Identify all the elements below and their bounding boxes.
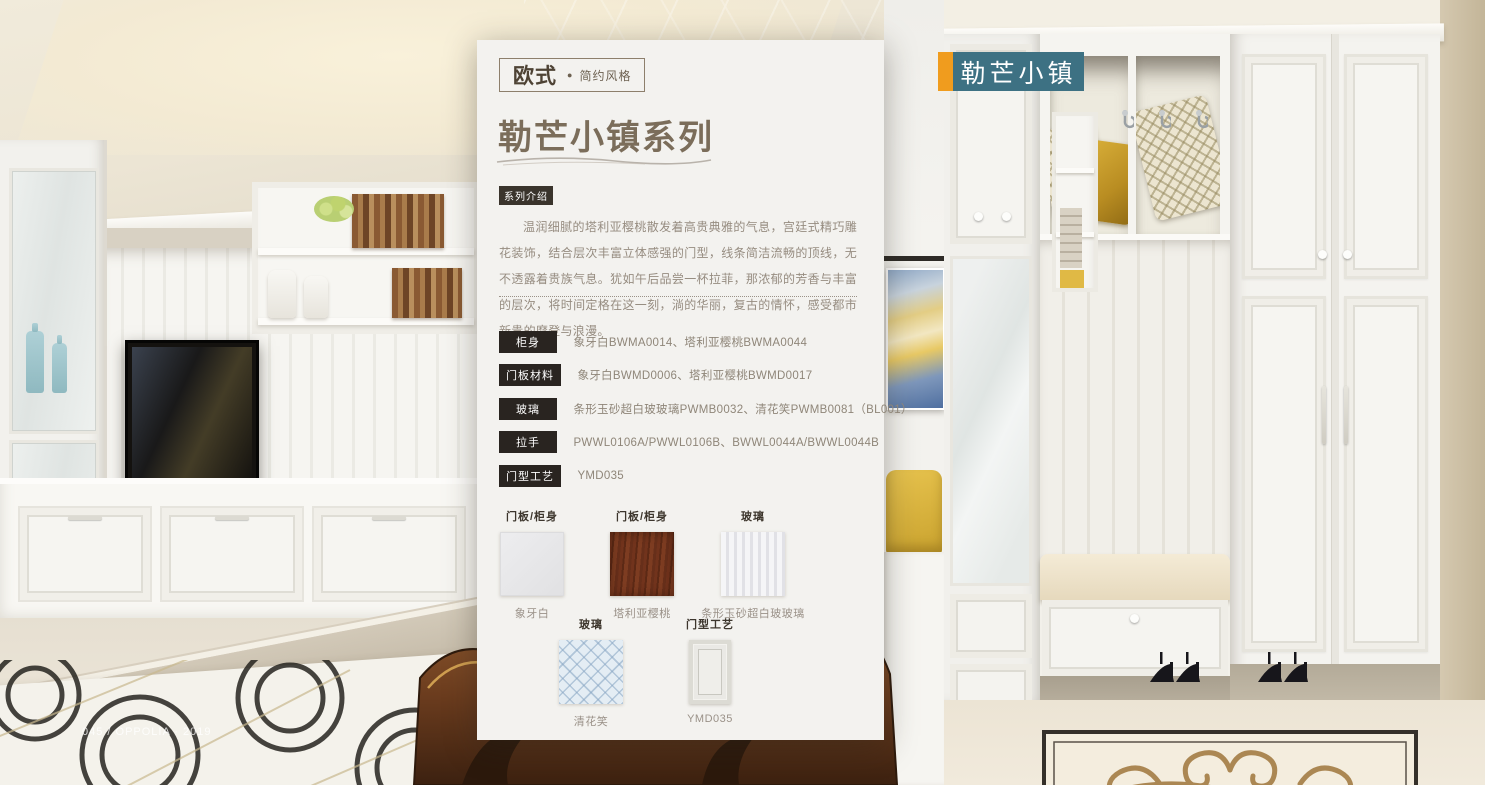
swatch-cell: 门板/柜身 象牙白 bbox=[477, 508, 587, 621]
swatch-category: 门型工艺 bbox=[655, 616, 765, 632]
drawer-knob bbox=[1130, 614, 1139, 623]
swatch-ivory-white bbox=[500, 532, 564, 596]
swatch-name: YMD035 bbox=[655, 713, 765, 725]
spec-value: 象牙白BWMD0006、塔利亚樱桃BWMD0017 bbox=[577, 370, 812, 382]
yellow-cushion bbox=[886, 470, 942, 554]
drawer bbox=[18, 506, 152, 602]
door-panel bbox=[1242, 296, 1326, 652]
shelf bbox=[258, 318, 474, 325]
spec-value: YMD035 bbox=[577, 470, 624, 482]
swatch-lattice-glass bbox=[559, 640, 623, 704]
swatch-striped-glass bbox=[721, 532, 785, 596]
swatch-cell: 门板/柜身 塔利亚樱桃 bbox=[587, 508, 697, 621]
door-knob bbox=[1002, 212, 1011, 221]
glass-cabinet bbox=[944, 34, 1040, 700]
swatch-name: 清花笑 bbox=[536, 713, 646, 729]
mirror-panel bbox=[950, 256, 1032, 586]
catalog-panel: 欧式 ● 简约风格 勒芒小镇系列 系列介绍 温润细腻的塔利亚樱桃散发着高贵典雅的… bbox=[477, 40, 884, 740]
series-header: 勒芒小镇 bbox=[938, 52, 1084, 91]
coat-hook bbox=[1116, 110, 1134, 134]
page-number: 045 / OPPOLIA · 2019 bbox=[82, 726, 211, 738]
swatch-talia-cherry bbox=[610, 532, 674, 596]
spec-row: 玻璃 条形玉砂超白玻玻璃PWMB0032、清花笑PWMB0081（BL001） bbox=[499, 398, 913, 420]
cubby bbox=[1136, 56, 1220, 234]
coat-hook bbox=[1190, 110, 1208, 134]
swatch-door-style bbox=[689, 640, 731, 704]
door-handle bbox=[1344, 386, 1348, 444]
spec-value: 条形玉砂超白玻玻璃PWMB0032、清花笑PWMB0081（BL001） bbox=[573, 404, 912, 416]
wall-shelves bbox=[252, 182, 480, 334]
drawer bbox=[160, 506, 304, 602]
drawer bbox=[950, 594, 1032, 658]
door-handle bbox=[1322, 386, 1326, 444]
spec-label: 门型工艺 bbox=[499, 465, 561, 487]
books bbox=[1060, 208, 1082, 268]
tv-reflection bbox=[132, 347, 252, 481]
drawer-handle bbox=[372, 516, 406, 520]
side-open-shelves bbox=[1052, 112, 1098, 292]
spec-value: PWWL0106A/PWWL0106B、BWWL0044A/BWWL0044B bbox=[573, 437, 879, 449]
door-knob bbox=[974, 212, 983, 221]
spec-label: 玻璃 bbox=[499, 398, 557, 420]
spec-row: 拉手 PWWL0106A/PWWL0106B、BWWL0044A/BWWL004… bbox=[499, 431, 879, 453]
open-section bbox=[1040, 34, 1230, 700]
spec-row: 柜身 象牙白BWMA0014、塔利亚樱桃BWMA0044 bbox=[499, 331, 807, 353]
door-knob bbox=[1343, 250, 1352, 259]
series-intro-text: 温润细腻的塔利亚樱桃散发着高贵典雅的气息，宫廷式精巧雕花装饰，结合层次丰富立体感… bbox=[499, 214, 857, 344]
door-panel bbox=[1344, 296, 1428, 652]
swatch-category: 门板/柜身 bbox=[477, 508, 587, 524]
substyle-name: 简约风格 bbox=[579, 67, 631, 84]
drawer-handle bbox=[68, 516, 102, 520]
series-intro-tag: 系列介绍 bbox=[499, 186, 553, 205]
glass-door bbox=[9, 168, 99, 434]
spec-row: 门板材料 象牙白BWMD0006、塔利亚樱桃BWMD0017 bbox=[499, 364, 812, 386]
spec-label: 拉手 bbox=[499, 431, 557, 453]
swatch-category: 门板/柜身 bbox=[587, 508, 697, 524]
bullet-icon: ● bbox=[567, 70, 572, 80]
book-spines bbox=[392, 268, 462, 318]
floor-medallion bbox=[1040, 726, 1420, 785]
flowers bbox=[314, 196, 354, 222]
book-spines bbox=[352, 194, 444, 248]
white-jar bbox=[268, 270, 296, 318]
shelf bbox=[258, 248, 474, 255]
door-knob bbox=[1318, 250, 1327, 259]
swatch-cell: 玻璃 条形玉砂超白玻玻璃 bbox=[698, 508, 808, 621]
series-title: 勒芒小镇系列 bbox=[498, 110, 714, 159]
door-panel bbox=[1242, 54, 1326, 279]
series-header-title: 勒芒小镇 bbox=[960, 54, 1076, 90]
swatch-category: 玻璃 bbox=[536, 616, 646, 632]
tv-screen bbox=[125, 340, 259, 488]
swatch-category: 玻璃 bbox=[698, 508, 808, 524]
style-name: 欧式 bbox=[513, 60, 557, 90]
drawer bbox=[312, 506, 466, 602]
door-panel bbox=[1344, 54, 1428, 279]
high-heels bbox=[1148, 640, 1204, 690]
tv-cabinet-base bbox=[0, 478, 483, 628]
drawer-handle bbox=[215, 516, 249, 520]
style-badge: 欧式 ● 简约风格 bbox=[499, 58, 645, 92]
spec-label: 门板材料 bbox=[499, 364, 561, 386]
series-header-box: 勒芒小镇 bbox=[953, 52, 1084, 91]
title-underline-flourish bbox=[495, 154, 715, 168]
white-jar bbox=[304, 276, 328, 318]
two-door-wardrobe bbox=[1230, 34, 1440, 700]
high-heels bbox=[1256, 640, 1312, 690]
orange-accent-bar bbox=[938, 52, 953, 91]
blue-vase bbox=[52, 343, 67, 393]
spec-value: 象牙白BWMA0014、塔利亚樱桃BWMA0044 bbox=[573, 337, 807, 349]
shelf-edge bbox=[884, 256, 944, 261]
wall-painting bbox=[886, 268, 944, 410]
spec-label: 柜身 bbox=[499, 331, 557, 353]
coat-hook bbox=[1153, 110, 1171, 134]
blue-vase bbox=[26, 331, 44, 393]
swatch-cell: 门型工艺 YMD035 bbox=[655, 616, 765, 725]
yellow-object bbox=[1060, 270, 1084, 288]
swatch-cell: 玻璃 清花笑 bbox=[536, 616, 646, 729]
dotted-divider bbox=[499, 296, 857, 297]
spec-row: 门型工艺 YMD035 bbox=[499, 465, 624, 487]
bench-cushion bbox=[1040, 554, 1230, 600]
wardrobe-photo bbox=[944, 0, 1485, 785]
